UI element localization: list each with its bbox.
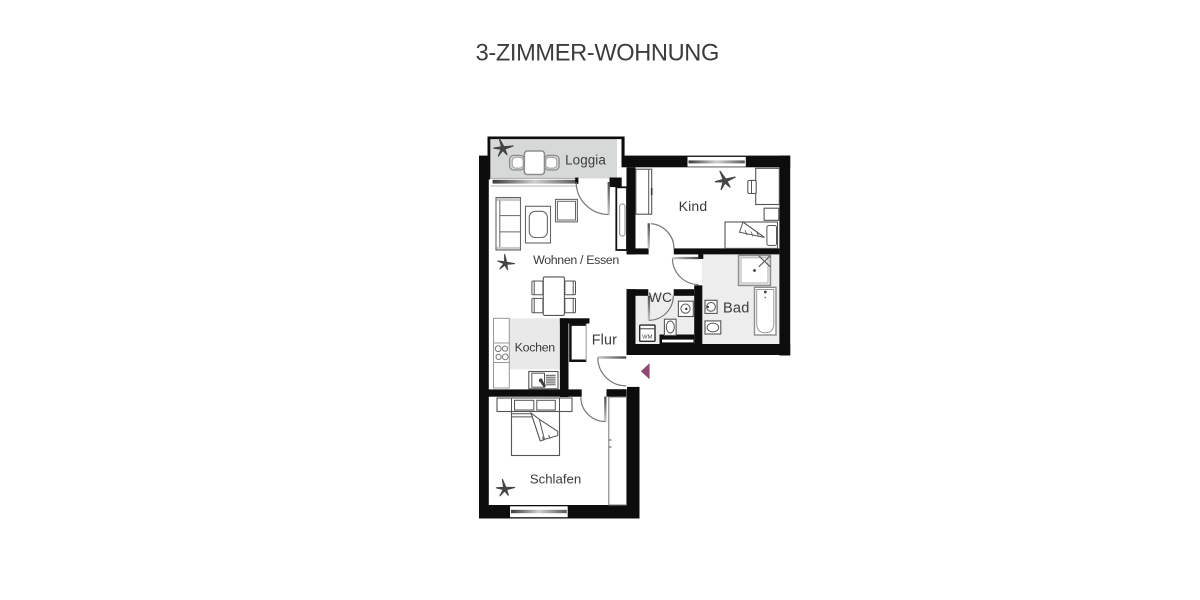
svg-text:Loggia: Loggia <box>565 153 606 168</box>
svg-text:Kochen: Kochen <box>515 340 556 354</box>
svg-text:3-ZIMMER-WOHNUNG: 3-ZIMMER-WOHNUNG <box>476 41 719 67</box>
svg-text:WM: WM <box>642 334 652 340</box>
svg-text:Wohnen / Essen: Wohnen / Essen <box>533 253 619 267</box>
svg-text:Kind: Kind <box>679 198 708 214</box>
svg-text:WC: WC <box>649 290 673 305</box>
svg-text:Flur: Flur <box>592 333 617 349</box>
svg-text:Bad: Bad <box>723 301 750 317</box>
svg-text:Schlafen: Schlafen <box>530 471 581 486</box>
